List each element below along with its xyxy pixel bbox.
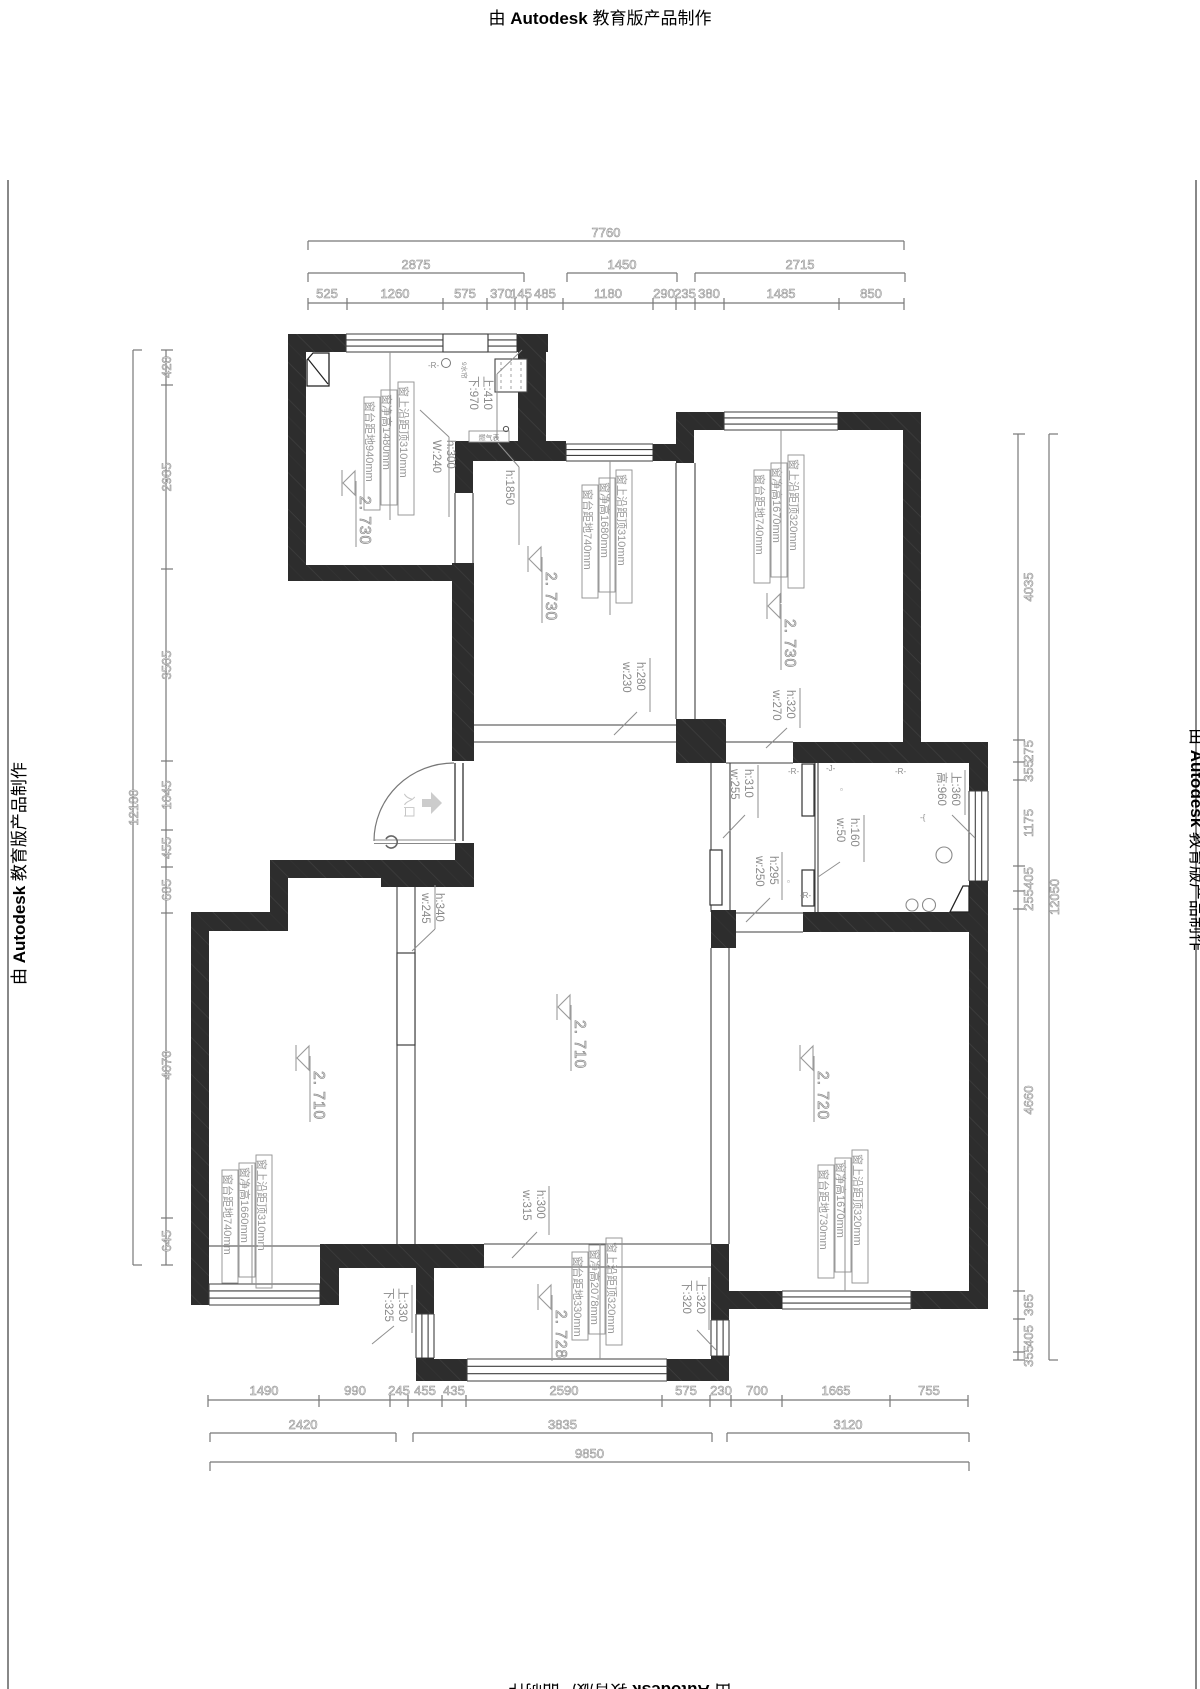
svg-text:-J-: -J-: [826, 764, 836, 773]
svg-text:405: 405: [1021, 867, 1036, 889]
svg-text:窗净高1680mm: 窗净高1680mm: [598, 482, 612, 558]
svg-text:255: 255: [1021, 889, 1036, 911]
svg-text:窗上沿距顶310mm: 窗上沿距顶310mm: [615, 474, 629, 566]
svg-text:窗上沿距顶320mm: 窗上沿距顶320mm: [605, 1242, 619, 1334]
svg-text:4070: 4070: [159, 1051, 174, 1080]
svg-text:3120: 3120: [834, 1417, 863, 1432]
svg-text:下:320: 下:320: [680, 1280, 692, 1314]
svg-text:h:1850: h:1850: [503, 470, 515, 505]
svg-text:由 Autodesk 教育版产品制作: 由 Autodesk 教育版产品制作: [10, 762, 29, 985]
svg-text:2. 710: 2. 710: [310, 1071, 327, 1120]
svg-text:235: 235: [674, 286, 696, 301]
svg-text:990: 990: [344, 1383, 366, 1398]
svg-text:645: 645: [159, 1230, 174, 1252]
svg-text:-R-: -R-: [428, 361, 439, 370]
svg-text:w:250: w:250: [753, 855, 765, 887]
svg-text:380: 380: [698, 286, 720, 301]
svg-text:上:320: 上:320: [694, 1280, 707, 1314]
svg-text:w:245: w:245: [419, 892, 431, 924]
svg-text:2590: 2590: [550, 1383, 579, 1398]
svg-text:4035: 4035: [1021, 573, 1036, 602]
svg-text:1450: 1450: [608, 257, 637, 272]
svg-text:下:970: 下:970: [467, 376, 479, 410]
svg-text:-{: -{: [920, 813, 926, 822]
svg-text:2875: 2875: [402, 257, 431, 272]
svg-text:上:330: 上:330: [396, 1288, 409, 1322]
svg-text:上:410: 上:410: [481, 376, 494, 410]
svg-text:700: 700: [746, 1383, 768, 1398]
svg-text:h:310: h:310: [742, 769, 754, 798]
svg-text:窗净高1480mm: 窗净高1480mm: [380, 394, 394, 470]
svg-text:3835: 3835: [548, 1417, 577, 1432]
svg-text:上:360: 上:360: [949, 772, 962, 806]
svg-text:1260: 1260: [381, 286, 410, 301]
svg-text:▫: ▫: [840, 785, 843, 794]
svg-text:h:295: h:295: [767, 856, 779, 885]
svg-text:1045: 1045: [159, 781, 174, 810]
svg-text:4660: 4660: [1021, 1086, 1036, 1115]
svg-text:1485: 1485: [767, 286, 796, 301]
svg-text:窗上沿距顶320mm: 窗上沿距顶320mm: [851, 1154, 865, 1246]
svg-text:2. 720: 2. 720: [814, 1071, 831, 1120]
svg-text:窗净高1670mm: 窗净高1670mm: [834, 1162, 848, 1238]
svg-text:145: 145: [510, 286, 532, 301]
svg-text:-R-: -R-: [895, 767, 906, 776]
svg-text:1490: 1490: [250, 1383, 279, 1398]
svg-text:575: 575: [675, 1383, 697, 1398]
svg-text:485: 485: [534, 286, 556, 301]
svg-text:290: 290: [653, 286, 675, 301]
svg-text:窗净高1670mm: 窗净高1670mm: [770, 467, 784, 543]
svg-text:h:320: h:320: [784, 690, 796, 719]
svg-text:9850: 9850: [575, 1446, 604, 1461]
svg-text:w:270: w:270: [770, 689, 782, 721]
svg-text:窗台距地730mm: 窗台距地730mm: [817, 1169, 831, 1250]
svg-text:-R-: -R-: [800, 891, 811, 900]
svg-text:窗台距地740mm: 窗台距地740mm: [581, 489, 595, 570]
svg-text:窗台距地740mm: 窗台距地740mm: [753, 474, 767, 555]
svg-text:由 Autodesk 教育版产品制作: 由 Autodesk 教育版产品制作: [509, 1681, 732, 1689]
svg-text:窗台距地740mm: 窗台距地740mm: [221, 1174, 235, 1255]
svg-text:1175: 1175: [1021, 809, 1036, 837]
svg-text:w:230: w:230: [620, 661, 632, 693]
svg-text:w:315: w:315: [520, 1189, 532, 1221]
svg-text:2715: 2715: [786, 257, 815, 272]
svg-text:420: 420: [159, 356, 174, 378]
svg-text:2420: 2420: [289, 1417, 318, 1432]
svg-text:窗上沿距顶320mm: 窗上沿距顶320mm: [787, 459, 801, 551]
svg-text:230: 230: [710, 1383, 732, 1398]
svg-text:455: 455: [159, 837, 174, 859]
svg-text:245: 245: [388, 1383, 410, 1398]
svg-text:2. 730: 2. 730: [542, 572, 559, 621]
svg-text:7760: 7760: [592, 225, 621, 240]
svg-text:275: 275: [1021, 740, 1036, 762]
svg-text:355: 355: [1021, 760, 1036, 782]
svg-text:755: 755: [918, 1383, 940, 1398]
svg-text:685: 685: [159, 879, 174, 901]
svg-text:1665: 1665: [822, 1383, 851, 1398]
svg-text:入口: 入口: [402, 793, 416, 818]
svg-text:燃气表: 燃气表: [479, 433, 500, 442]
svg-text:435: 435: [443, 1383, 465, 1398]
svg-text:525: 525: [316, 286, 338, 301]
svg-text:窗台距地330mm: 窗台距地330mm: [571, 1256, 585, 1337]
svg-text:窗台距地940mm: 窗台距地940mm: [363, 401, 377, 482]
svg-text:2. 730: 2. 730: [356, 496, 373, 545]
svg-text:575: 575: [454, 286, 476, 301]
svg-text:下:325: 下:325: [382, 1288, 394, 1322]
svg-text:窗上沿距顶310mm: 窗上沿距顶310mm: [255, 1159, 269, 1251]
svg-text:h:300: h:300: [444, 440, 456, 469]
svg-text:窗净高2078mm: 窗净高2078mm: [588, 1249, 602, 1325]
svg-text:h:160: h:160: [848, 818, 860, 847]
svg-text:455: 455: [414, 1383, 436, 1398]
svg-text:h:300: h:300: [534, 1190, 546, 1219]
svg-text:w:255: w:255: [728, 768, 740, 800]
svg-text:405: 405: [1021, 1325, 1036, 1347]
svg-text:365: 365: [1021, 1294, 1036, 1316]
svg-text:▫: ▫: [787, 877, 790, 886]
svg-text:2. 728: 2. 728: [552, 1310, 569, 1359]
svg-text:由 Autodesk 教育版产品制作: 由 Autodesk 教育版产品制作: [1187, 728, 1200, 951]
svg-text:由 Autodesk 教育版产品制作: 由 Autodesk 教育版产品制作: [489, 9, 712, 28]
svg-text:h:280: h:280: [634, 662, 646, 691]
svg-text:W:240: W:240: [430, 440, 442, 473]
svg-text:2. 730: 2. 730: [781, 619, 798, 668]
svg-text:370: 370: [490, 286, 512, 301]
svg-text:w:50: w:50: [834, 817, 846, 842]
svg-text:355: 355: [1021, 1345, 1036, 1367]
svg-text:850: 850: [860, 286, 882, 301]
svg-text:2. 710: 2. 710: [571, 1020, 588, 1069]
svg-text:-R-: -R-: [788, 767, 799, 776]
svg-text:12180: 12180: [126, 789, 141, 825]
svg-text:窗上沿距顶310mm: 窗上沿距顶310mm: [397, 386, 411, 478]
svg-text:3505: 3505: [159, 651, 174, 680]
svg-text:2985: 2985: [159, 463, 174, 492]
svg-text:1180: 1180: [594, 286, 622, 301]
svg-text:高:960: 高:960: [935, 772, 949, 806]
svg-text:窗净高1660mm: 窗净高1660mm: [238, 1167, 252, 1243]
svg-text:12050: 12050: [1047, 879, 1062, 915]
